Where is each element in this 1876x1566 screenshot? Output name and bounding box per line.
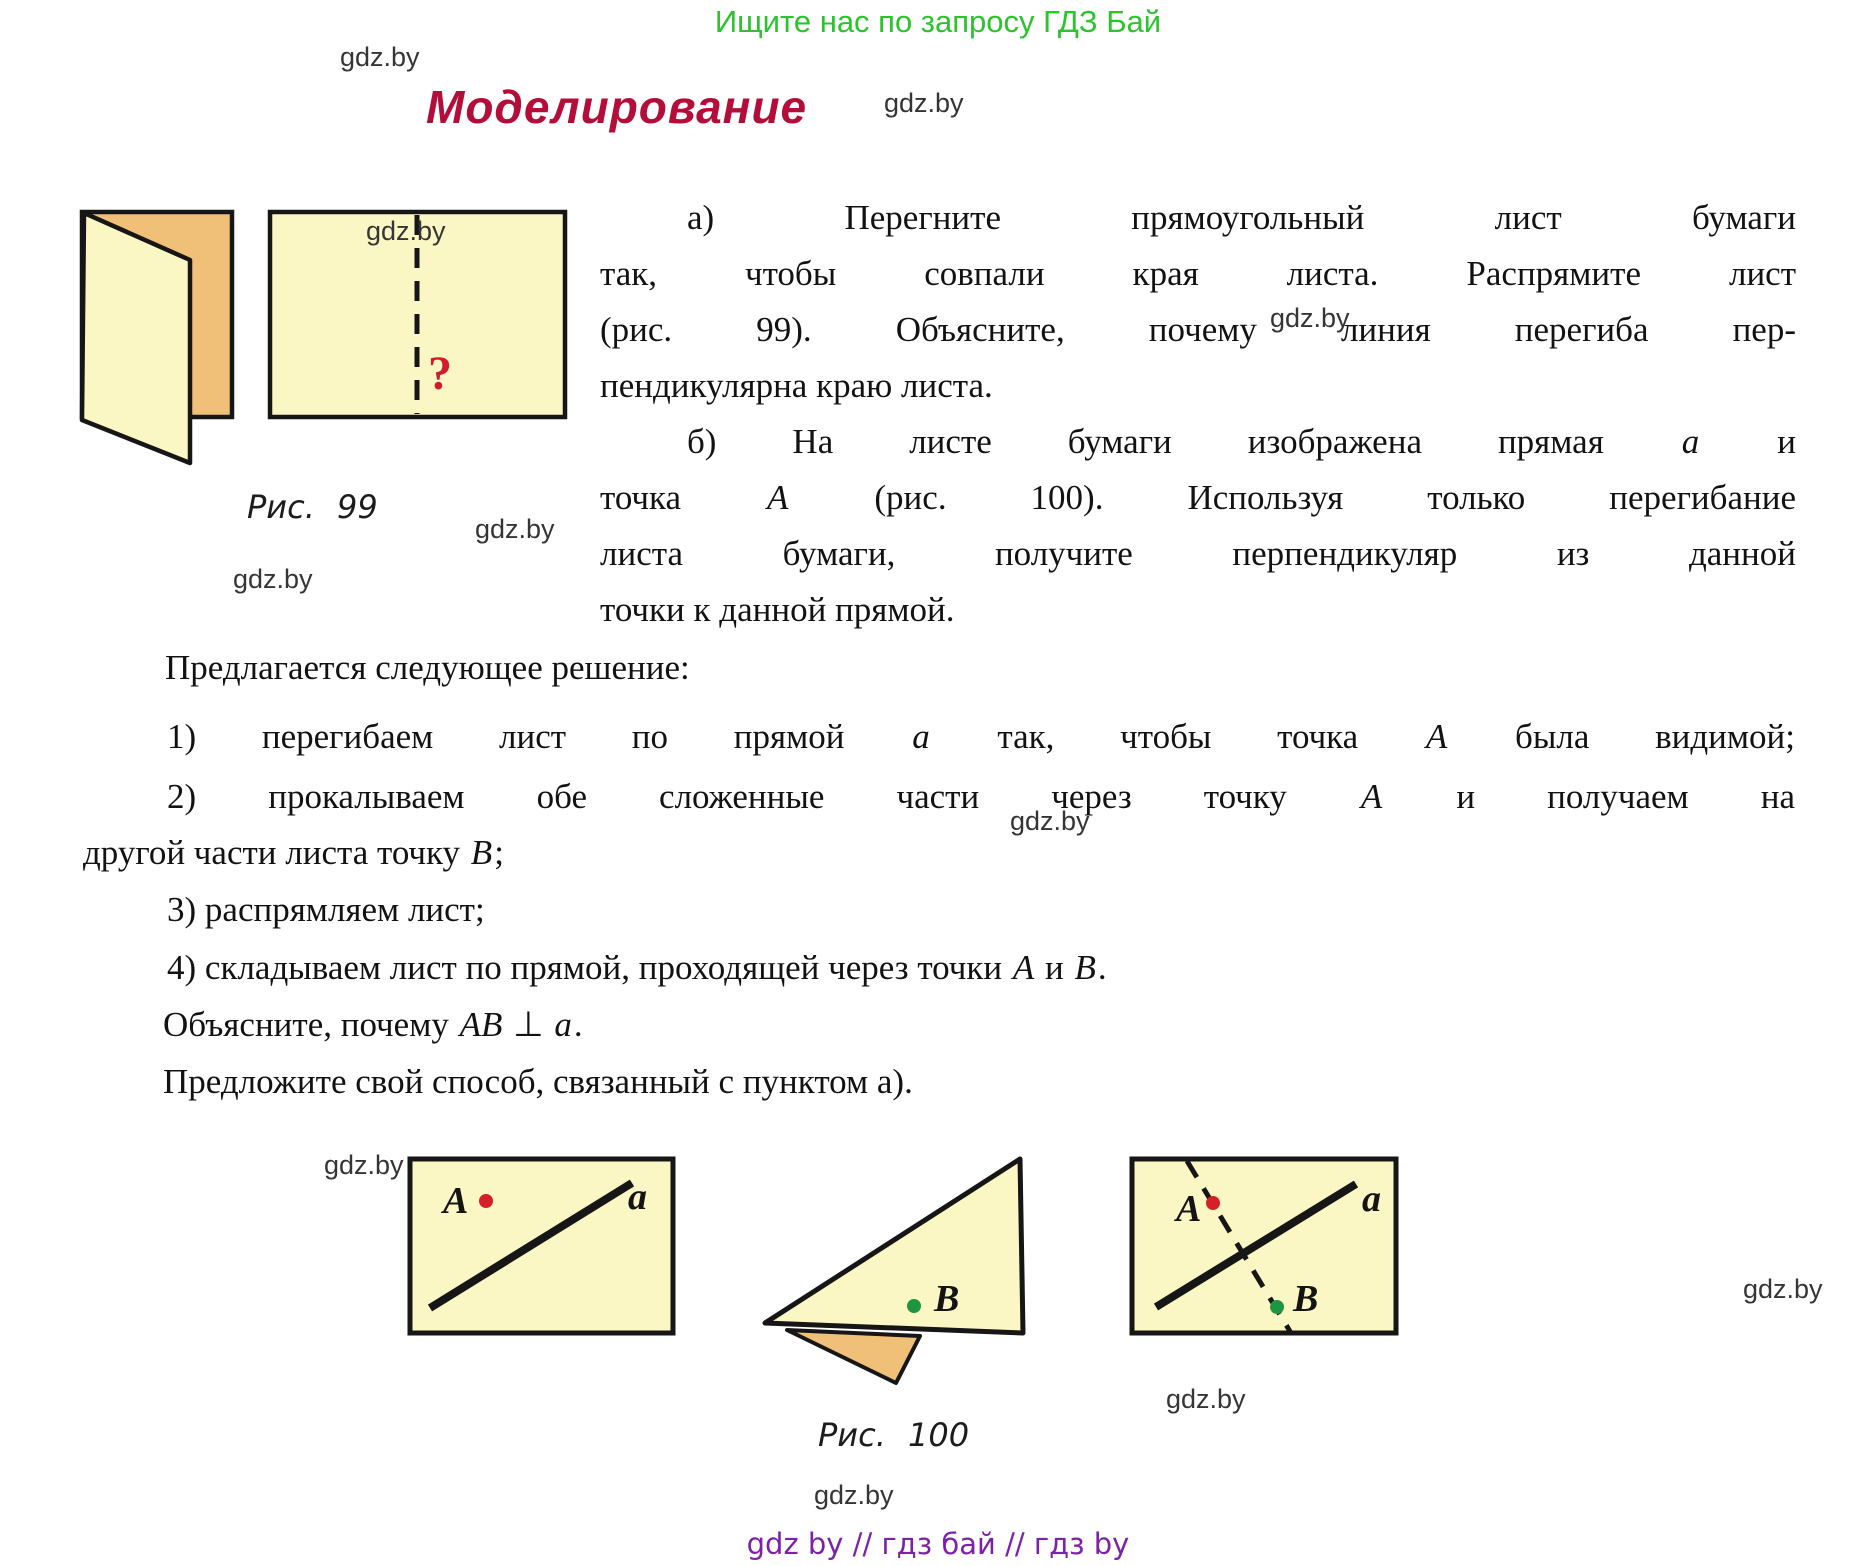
paragraph-b-line: б) На листе бумаги изображена прямая a и — [600, 414, 1796, 470]
watermark: gdz.by — [233, 564, 313, 595]
fig99-question-mark: ? — [428, 350, 452, 398]
paragraph-a-line: так, чтобы совпали края листа. Распрямит… — [600, 246, 1796, 302]
solution-step: 4) складываем лист по прямой, проходящей… — [167, 940, 1107, 996]
solution-intro: Предлагается следующее решение: — [165, 640, 690, 696]
fig100-left-label-A: A — [443, 1182, 468, 1220]
solution-step: 2) прокалываем обе сложенные части через… — [167, 769, 1795, 825]
watermark: gdz.by — [884, 88, 964, 119]
paragraph-a-line: (рис. 99). Объясните, почему линия перег… — [600, 302, 1796, 358]
paragraph-a-line: а) Перегните прямоугольный лист бумаги — [600, 190, 1796, 246]
fig99-folded-front-sheet — [82, 213, 190, 463]
watermark: gdz.by — [1166, 1384, 1246, 1415]
fig100-right-label-A: A — [1176, 1190, 1201, 1228]
outro-propose: Предложите свой способ, связанный с пунк… — [163, 1054, 913, 1110]
fig100-right-label-a: a — [1362, 1180, 1381, 1218]
fig100-middle-flap — [787, 1330, 920, 1383]
fig100-left-point-a-dot — [479, 1194, 493, 1208]
fig100-middle-label-B: B — [934, 1280, 959, 1318]
watermark: gdz.by — [324, 1150, 404, 1181]
fig100-middle-folded-sheet — [765, 1159, 1023, 1333]
page-title: Моделирование — [426, 80, 807, 134]
solution-step: 3) распрямляем лист; — [167, 882, 485, 938]
outro-explain: Объясните, почему AB ⊥ a. — [163, 997, 583, 1053]
fig99-caption: Рис. 99 — [247, 488, 378, 526]
fig100-right-label-B: B — [1293, 1280, 1318, 1318]
fig100-right-point-a-dot — [1206, 1196, 1220, 1210]
solution-step: 1) перегибаем лист по прямой a так, чтоб… — [167, 709, 1795, 765]
watermark: gdz.by — [366, 216, 446, 247]
fig100-right-point-b-dot — [1270, 1300, 1284, 1314]
watermark: gdz.by — [1743, 1274, 1823, 1305]
paragraph-b-line: листа бумаги, получите перпендикуляр из … — [600, 526, 1796, 582]
solution-step-wrap: другой части листа точку B; — [83, 825, 504, 881]
textbook-page: { "header": { "promo": "Ищите нас по зап… — [0, 0, 1876, 1566]
paragraph-b-line: точка A (рис. 100). Используя только пер… — [600, 470, 1796, 526]
fig100-caption: Рис. 100 — [818, 1416, 969, 1454]
watermark: gdz.by — [340, 42, 420, 73]
paragraph-a-line: пендикулярна краю листа. — [600, 358, 1796, 414]
watermark: gdz.by — [814, 1480, 894, 1511]
promo-header: Ищите нас по запросу ГДЗ Бай — [0, 4, 1876, 40]
fig100-left-label-a: a — [628, 1178, 647, 1216]
watermark: gdz.by — [475, 514, 555, 545]
fig100-middle-point-b-dot — [907, 1299, 921, 1313]
paragraph-b-line: точки к данной прямой. — [600, 582, 1796, 638]
promo-footer: gdz by // гдз бай // гдз by — [0, 1527, 1876, 1561]
